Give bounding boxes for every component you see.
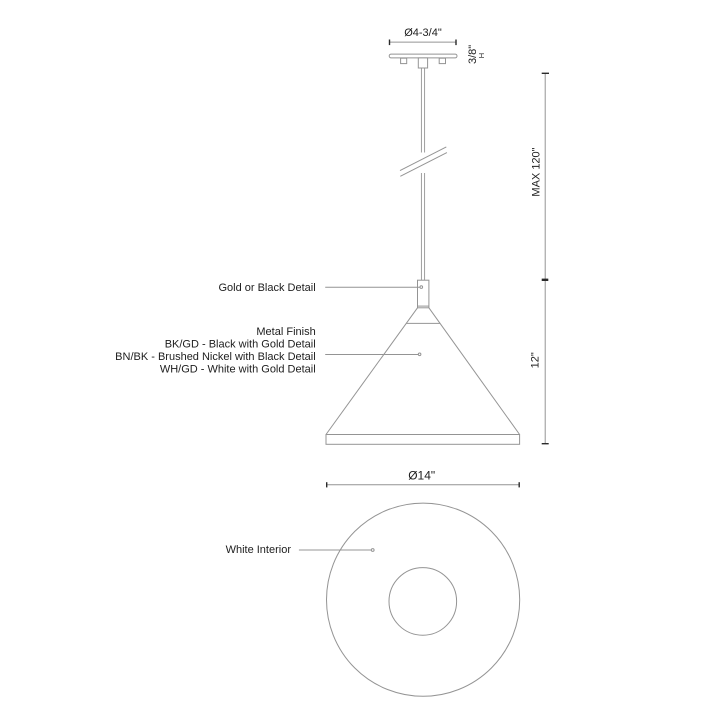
svg-text:12": 12" xyxy=(529,352,541,368)
svg-text:MAX 120": MAX 120" xyxy=(531,147,543,196)
svg-text:BK/GD - Black with Gold Detail: BK/GD - Black with Gold Detail xyxy=(165,338,316,350)
svg-text:Gold or Black Detail: Gold or Black Detail xyxy=(218,282,315,294)
svg-text:WH/GD - White with Gold Detail: WH/GD - White with Gold Detail xyxy=(160,364,316,376)
svg-text:Metal Finish: Metal Finish xyxy=(256,326,315,338)
svg-text:BN/BK - Brushed Nickel with Bl: BN/BK - Brushed Nickel with Black Detail xyxy=(115,351,316,363)
svg-text:H: H xyxy=(477,53,486,58)
svg-text:White Interior: White Interior xyxy=(226,544,292,556)
svg-text:Ø4-3/4": Ø4-3/4" xyxy=(404,27,442,39)
svg-text:Ø14": Ø14" xyxy=(408,468,435,482)
